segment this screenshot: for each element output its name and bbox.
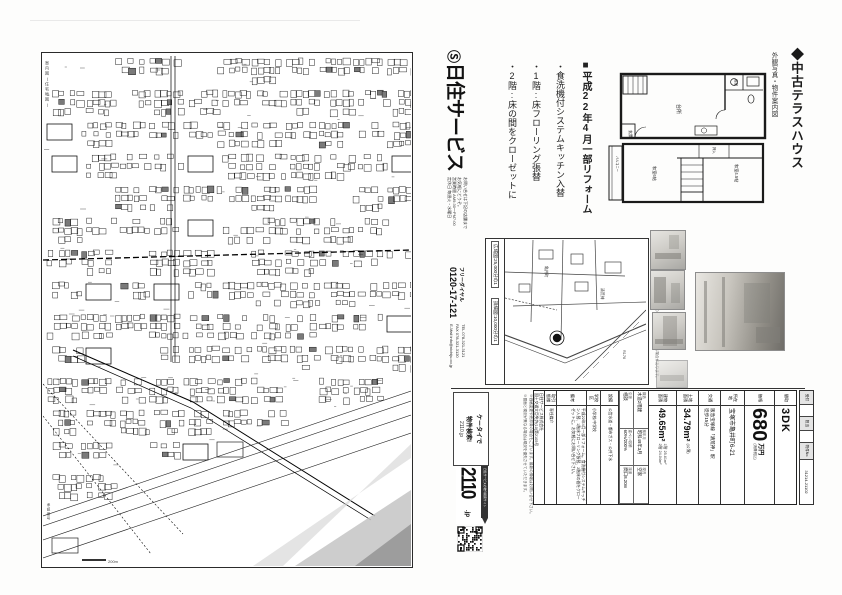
mobile-catch-line1: ケータイで bbox=[475, 414, 484, 444]
map-side-label: 案内図(住宅地図) bbox=[44, 61, 50, 171]
exterior-photo bbox=[695, 272, 785, 351]
school-value: 小学校/中学校 bbox=[587, 406, 600, 504]
ref-blank-2 bbox=[800, 431, 813, 443]
listing-table: 間取 3DK 価格 680 万円 (消費税込) 所在地 宝塚市亀井町6-21 交… bbox=[533, 390, 797, 505]
location-map-drawing: 亀井町 清荒神 R176 bbox=[505, 240, 646, 381]
company-line: 日住サービス株式会社 bbox=[538, 393, 543, 431]
listing-disclaimer: ※価格変更や売却済の場合もございます。最新の情報はお問い合せ下さい。 ※図面と現… bbox=[495, 394, 533, 500]
smallprint-line: 定休日 毎週火・水曜日 bbox=[446, 177, 451, 261]
address-label: 所在地 bbox=[721, 391, 744, 406]
building-1f: 1階 25.61m² bbox=[663, 444, 668, 465]
land-area: 34.79m² bbox=[683, 408, 693, 442]
price-note: (消費税込) bbox=[753, 443, 758, 459]
row-access: 交通 阪急宝塚線「清荒神」駅 徒歩15分 bbox=[698, 391, 720, 504]
row-land: 土地面積 34.79m² (公簿) bbox=[676, 391, 698, 504]
qr-code bbox=[457, 526, 483, 552]
room-label-tatami45: 和室4.5帖 bbox=[733, 164, 740, 182]
status-value: 空家 bbox=[637, 467, 643, 502]
company-strip: Ⓢ日住サービス お問い合せは下記の店舗まで お気軽にどうぞ。 営業時間 AM9:… bbox=[437, 50, 477, 400]
price-label: 価格 bbox=[745, 391, 774, 406]
map-page: 案内図(住宅地図) 承認番号 200m bbox=[41, 52, 413, 568]
company-fax: FAX 078-321-3120 bbox=[454, 324, 460, 382]
map-scale-bar bbox=[82, 559, 106, 561]
site-banner: 日住サービスの物件検索サイト bbox=[481, 466, 488, 518]
interior-photo-3 bbox=[652, 312, 686, 350]
room-label-bath: 浴室 bbox=[734, 79, 739, 87]
map-scale-label: 200m bbox=[108, 559, 118, 564]
row-transaction: 取引態様 専任媒介 bbox=[544, 391, 556, 504]
row-school: 学校区 小学校/中学校 bbox=[586, 391, 600, 504]
building-area: 49.65m² bbox=[658, 408, 668, 442]
madori-label: 間取 bbox=[775, 391, 796, 406]
coverage-label: 建ぺい/容積 bbox=[628, 430, 633, 465]
row-address: 所在地 宝塚市亀井町6-21 bbox=[720, 391, 744, 504]
transaction-value: 専任媒介 bbox=[545, 406, 556, 504]
renovation-item: ・2階:床の間をクローゼットに bbox=[506, 62, 519, 237]
address-value: 宝塚市亀井町6-21 bbox=[721, 406, 744, 504]
handover-label: 引渡 bbox=[628, 392, 633, 427]
structure-label: 構造 bbox=[643, 392, 648, 427]
built-value: 昭和49年3月 bbox=[637, 430, 643, 465]
row-price: 価格 680 万円 (消費税込) bbox=[744, 391, 774, 504]
mobile-search-box: ケータイで 物件検索! 2110.jp bbox=[453, 392, 489, 466]
location-map-caption: 広域図:25,000分の1 詳細図:10,000分の1 bbox=[488, 241, 503, 381]
scanned-flyer-sheet: 案内図(住宅地図) 承認番号 200m ◆中古テラスハウス 外観写真・物件案内図… bbox=[0, 0, 842, 595]
map-label: 清荒神 bbox=[600, 288, 605, 300]
site-number: 2110 bbox=[455, 467, 480, 498]
row-madori: 間取 3DK bbox=[774, 391, 796, 504]
residential-map-drawing bbox=[43, 54, 411, 566]
flyer-title: ◆中古テラスハウス bbox=[787, 48, 806, 188]
row-remarks: 備考 平成22年4月一部リフォーム。食洗機付システムキッチン入替、1階床フローリ… bbox=[556, 391, 586, 504]
building-2f: 2階 24.04m² bbox=[658, 444, 663, 465]
remarks-label: 備考 bbox=[557, 391, 586, 406]
flyer-page: ◆中古テラスハウス 外観写真・物件案内図 ■平成22年4月一部リフォーム ・食洗… bbox=[437, 42, 815, 594]
company-name: 日住サービス bbox=[445, 63, 466, 171]
room-label-entrance: 玄関 bbox=[628, 130, 634, 138]
coverage-value: 60%/200% bbox=[623, 430, 628, 465]
remarks-value: 平成22年4月一部リフォーム。食洗機付システムキッチン入替、1階床フローリング張… bbox=[557, 406, 586, 504]
mobile-site-url: 2110.jp bbox=[458, 421, 464, 437]
site-2110-logo: 日住サービスの物件検索サイト 2110 .jp bbox=[456, 466, 488, 524]
mobile-catch-line2: 物件検索! bbox=[465, 416, 474, 442]
interior-photo-4 bbox=[656, 360, 688, 388]
renovation-item: ・食洗機付システムキッチン入替 bbox=[554, 62, 567, 237]
ref-label-2: 担当 bbox=[800, 417, 813, 431]
row-company: 日住サービス株式会社 国土交通大臣免許(10)第2105号 bbox=[532, 391, 544, 504]
interior-photo-1 bbox=[650, 230, 686, 270]
map-label: R176 bbox=[622, 350, 626, 359]
freedial-label: フリーダイヤル bbox=[459, 267, 466, 318]
utilities-label: 設備 bbox=[601, 391, 618, 406]
map-approval-note: 承認番号 bbox=[47, 503, 52, 549]
location-map-box: 広域図:25,000分の1 詳細図:10,000分の1 bbox=[485, 238, 649, 385]
price-unit: 万円 bbox=[758, 443, 767, 459]
banner-arrow-icon bbox=[482, 518, 488, 524]
section-divider bbox=[451, 388, 805, 389]
access-label: 交通 bbox=[699, 391, 720, 406]
reference-strip: 受付 担当 物件No. 31214-21102 bbox=[799, 390, 814, 505]
ref-number: 31214-21102 bbox=[800, 460, 813, 504]
room-label-kitchen: 台所 bbox=[675, 104, 682, 114]
disclaimer-line: ※図面と現況が異なる場合は現況を優先させていただきます。 bbox=[522, 394, 528, 500]
handover-value: 相談 bbox=[622, 392, 628, 427]
freedial-block: フリーダイヤル 0120-17-121 bbox=[449, 267, 466, 318]
room-label-balcony: バルコニー bbox=[615, 156, 619, 172]
utilities-value: 公営水道・都市ガス・公共下水 bbox=[601, 406, 618, 504]
floorplan-drawing: 台所 玄関 浴室 和室6帖 和室4.5帖 押入 バルコニー bbox=[577, 66, 772, 208]
smallprint-line: 営業時間 AM9:30〜PM7:00 bbox=[452, 177, 457, 261]
map-scale-detail: 詳細図:10,000分の1 bbox=[492, 298, 500, 345]
ref-label-3: 物件No. bbox=[800, 443, 813, 460]
price-value: 680 bbox=[750, 408, 770, 441]
transaction-label: 取引態様 bbox=[545, 391, 556, 406]
company-logo-mark-icon: Ⓢ bbox=[447, 50, 462, 62]
interior-photo-2 bbox=[650, 270, 685, 310]
status-label: 現況 bbox=[643, 467, 648, 502]
access-line: 阪急宝塚線「清荒神」駅 bbox=[710, 408, 716, 459]
building-label: 建物面積 bbox=[649, 391, 676, 406]
site-tld: .jp bbox=[464, 510, 470, 517]
land-label: 土地面積 bbox=[677, 391, 698, 406]
school-label: 学校区 bbox=[587, 391, 600, 406]
ref-label-1: 受付 bbox=[800, 391, 813, 405]
room-label-closet: 押入 bbox=[712, 147, 717, 154]
row-building: 建物面積 49.65m² 1階 25.61m² 2階 24.04m² bbox=[648, 391, 676, 504]
madori-value: 3DK bbox=[775, 406, 796, 504]
built-label: 築年月 bbox=[643, 430, 648, 465]
frontage-label: 接道 bbox=[628, 467, 633, 502]
structure-value: 木造2階建 bbox=[637, 392, 643, 427]
frontage-value: 間口8.20m bbox=[622, 467, 628, 502]
smallprint-line: お問い合せは下記の店舗まで bbox=[462, 177, 467, 261]
company-logo: Ⓢ日住サービス bbox=[444, 50, 471, 171]
company-contact: TEL 078-321-3121 FAX 078-321-3120 E-Mail… bbox=[448, 324, 466, 382]
company-smallprint: お問い合せは下記の店舗まで お気軽にどうぞ。 営業時間 AM9:30〜PM7:0… bbox=[446, 177, 468, 261]
row-utilities: 設備 公営水道・都市ガス・公共下水 bbox=[600, 391, 618, 504]
land-note: (公簿) bbox=[685, 444, 690, 454]
map-scale-wide: 広域図:25,000分の1 bbox=[492, 241, 500, 288]
company-mail: E-Mail info@nichiju.co.jp bbox=[448, 324, 454, 382]
license-line: 国土交通大臣免許(10)第2105号 bbox=[533, 393, 538, 446]
company-tel: TEL 078-321-3121 bbox=[460, 324, 466, 382]
access-walk: 徒歩15分 bbox=[704, 408, 710, 427]
ref-blank-1 bbox=[800, 405, 813, 417]
freedial-number: 0120-17-121 bbox=[449, 267, 459, 318]
scan-artifact-line bbox=[30, 20, 360, 21]
renovation-item: ・1階:床フローリング張替 bbox=[530, 62, 543, 237]
row-details: 構造木造2階建 築年月昭和49年3月 現況空家 引渡相談 建ぺい/容積60%/2… bbox=[618, 391, 648, 504]
room-label-tatami6: 和室6帖 bbox=[651, 166, 658, 181]
property-location-marker bbox=[553, 334, 561, 342]
map-label: 亀井町 bbox=[544, 266, 549, 278]
